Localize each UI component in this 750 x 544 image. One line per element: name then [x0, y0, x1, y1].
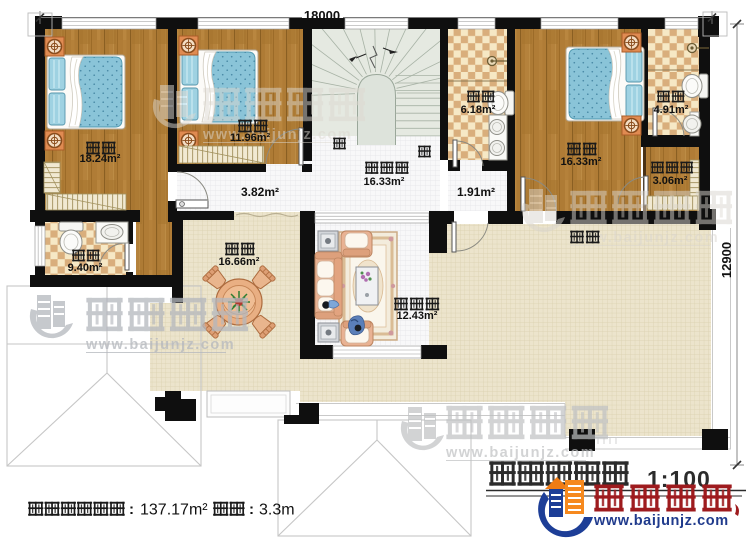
svg-text:www.baijunjz.com: www.baijunjz.com [85, 337, 235, 353]
svg-text:16.33m²: 16.33m² [561, 156, 602, 168]
svg-text:12.43m²: 12.43m² [397, 310, 438, 322]
svg-text:16.33m²: 16.33m² [364, 176, 405, 188]
svg-text:www.baijunjz.com: www.baijunjz.com [202, 127, 352, 143]
svg-text:9.40m²: 9.40m² [68, 262, 103, 274]
svg-text:12900: 12900 [719, 242, 734, 278]
svg-text:www.baijunjz.com: www.baijunjz.com [445, 445, 595, 461]
svg-text:16.66m²: 16.66m² [219, 256, 260, 268]
svg-text:18.24m²: 18.24m² [80, 153, 121, 165]
svg-text:6.18m²: 6.18m² [461, 104, 496, 116]
svg-text:1.91m²: 1.91m² [457, 185, 495, 199]
svg-text:18000: 18000 [304, 8, 340, 23]
svg-text:11.96m²: 11.96m² [230, 132, 271, 144]
svg-text::: : [249, 501, 254, 518]
svg-text:3.82m²: 3.82m² [241, 185, 279, 199]
svg-text:4.91m²: 4.91m² [654, 104, 689, 116]
svg-text:137.17m²: 137.17m² [140, 502, 208, 519]
svg-text::: : [129, 501, 134, 518]
svg-text:3.06m²: 3.06m² [653, 175, 688, 187]
svg-text:www.baijunjz.com: www.baijunjz.com [593, 513, 729, 529]
svg-text:3.3m: 3.3m [259, 502, 295, 519]
